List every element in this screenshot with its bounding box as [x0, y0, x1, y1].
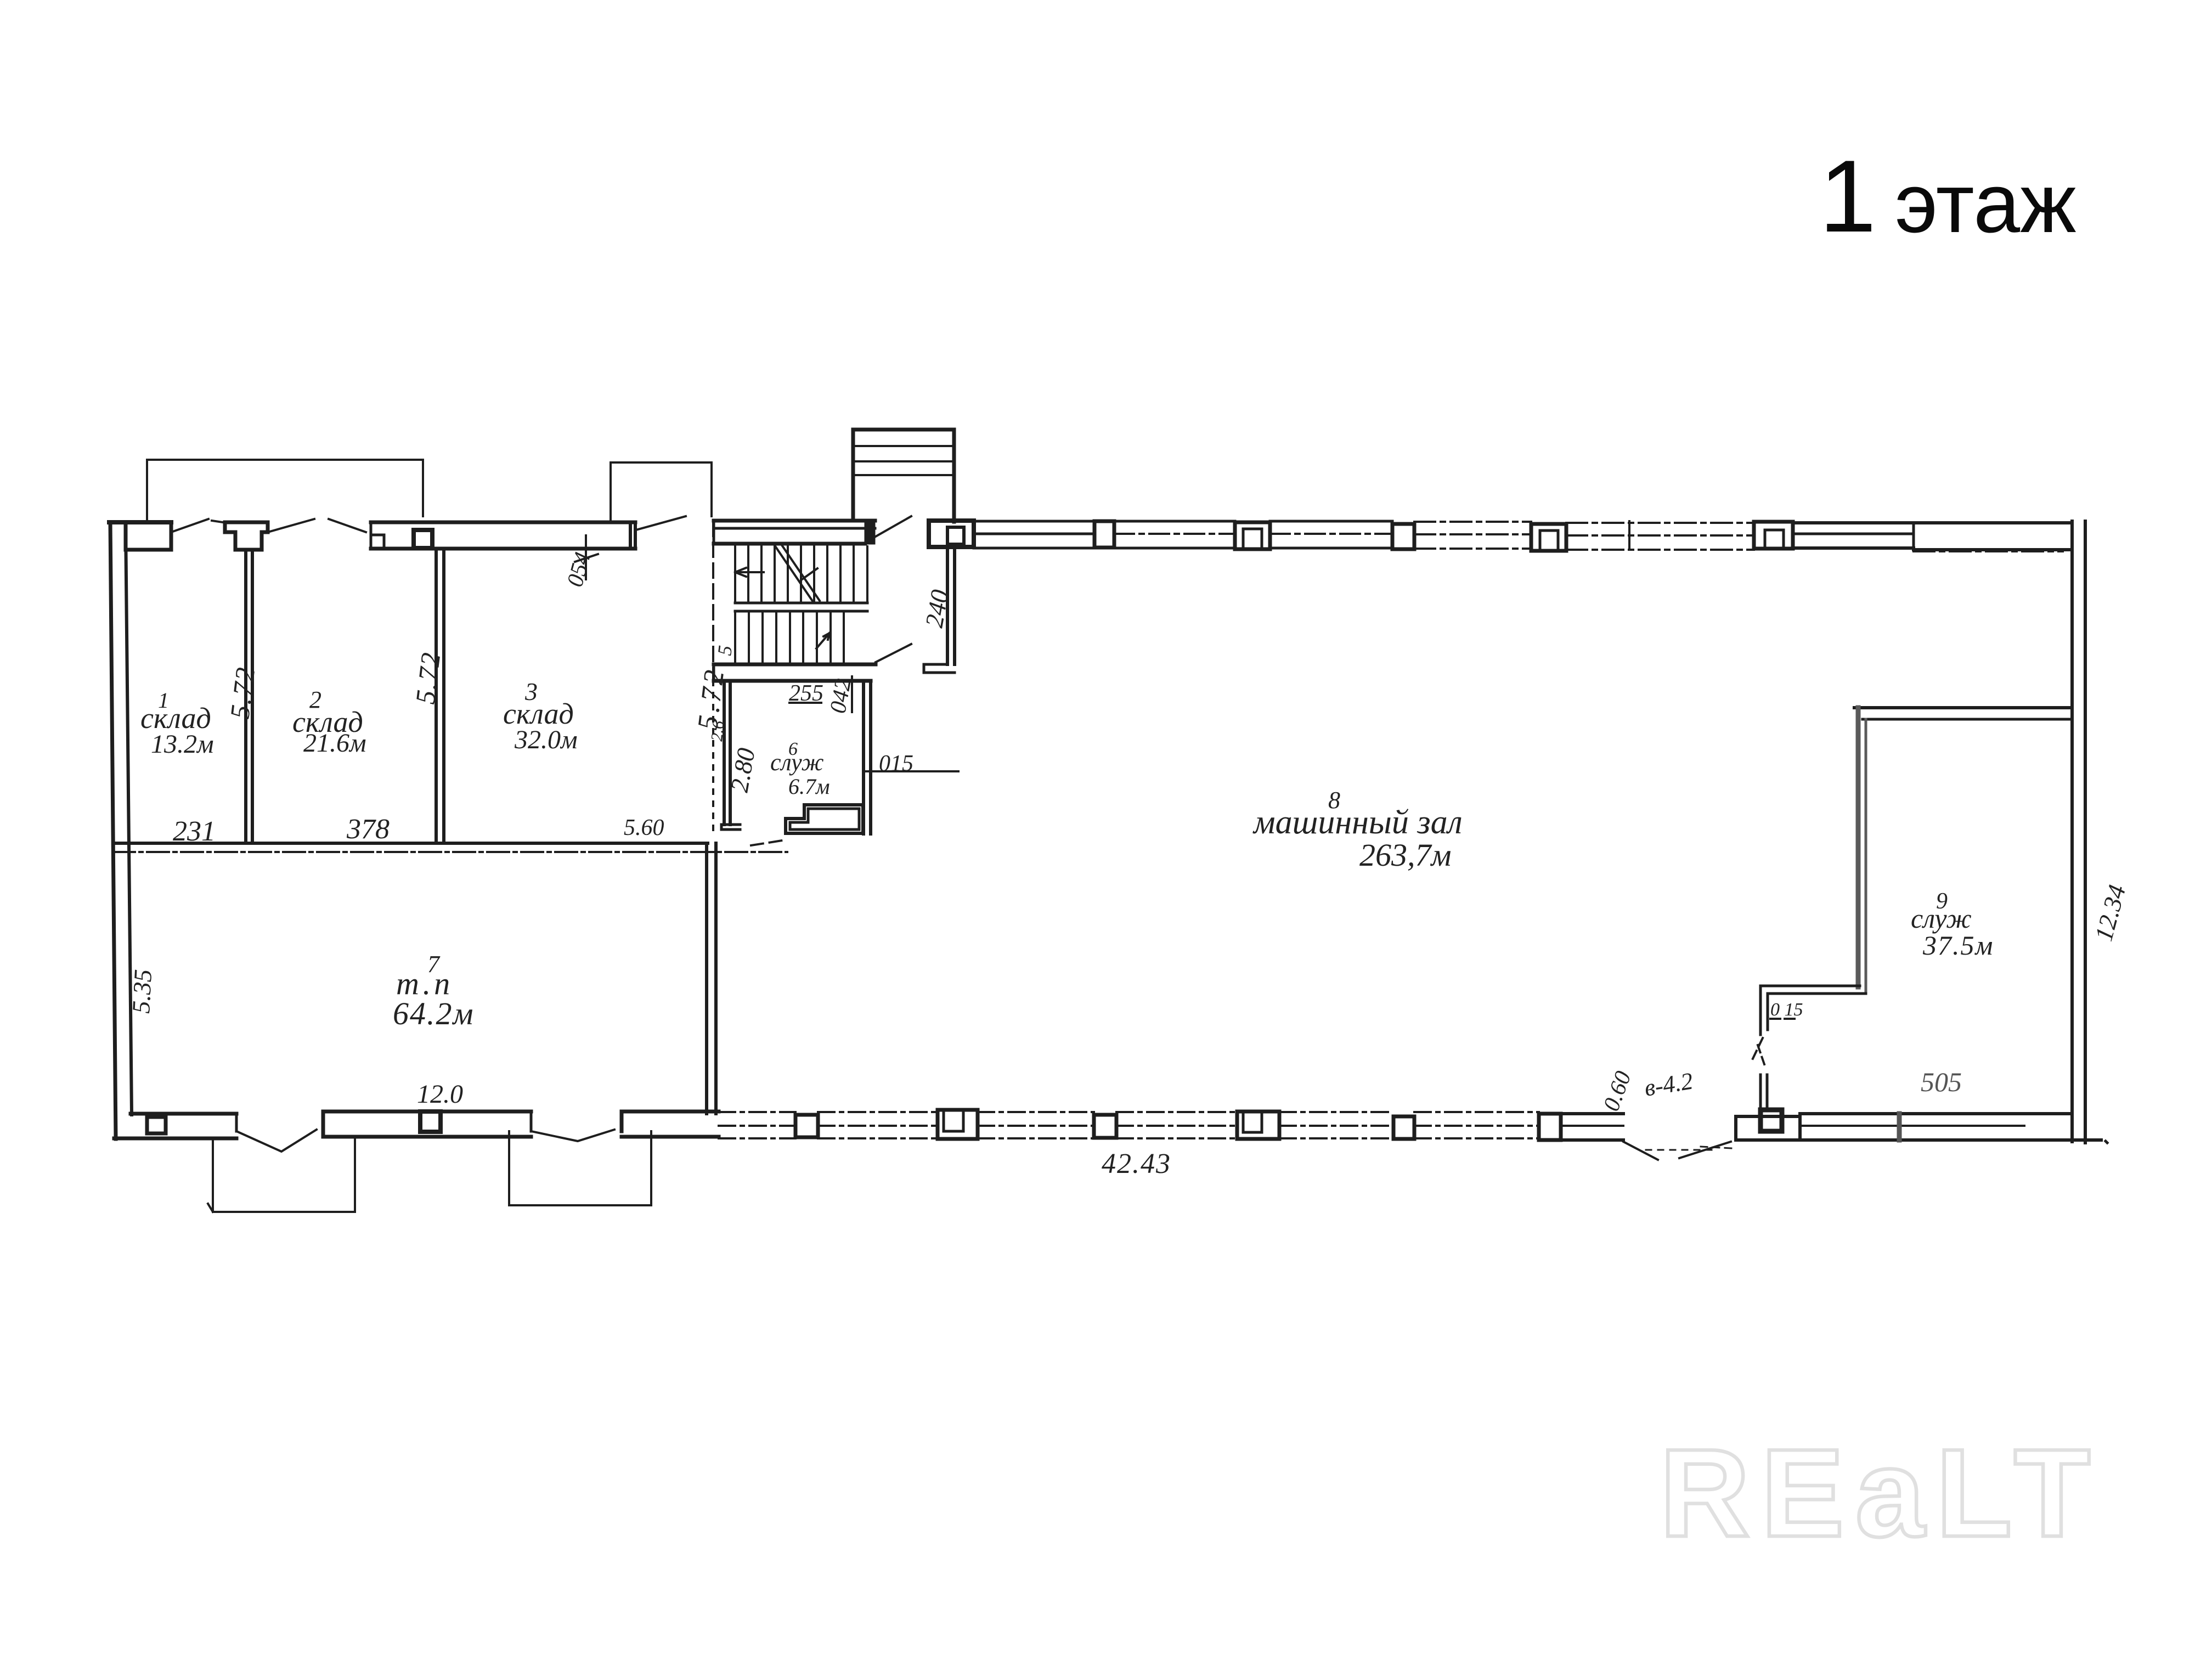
svg-text:505: 505 [1921, 1066, 1962, 1097]
svg-text:0 15: 0 15 [1770, 1000, 1803, 1020]
svg-text:32.0м: 32.0м [514, 725, 578, 754]
svg-text:42.43: 42.43 [1102, 1148, 1171, 1180]
svg-text:0.60: 0.60 [1599, 1068, 1636, 1115]
svg-text:12.0: 12.0 [417, 1080, 463, 1109]
svg-text:37.5м: 37.5м [1922, 930, 1994, 961]
svg-text:REaLT: REaLT [1660, 1424, 2101, 1563]
svg-text:13.2м: 13.2м [151, 730, 214, 759]
svg-text:6.7м: 6.7м [788, 774, 830, 799]
svg-text:в-4.2: в-4.2 [1643, 1068, 1695, 1102]
svg-text:5.35: 5.35 [127, 968, 157, 1014]
svg-text:263,7м: 263,7м [1359, 837, 1452, 873]
svg-text:5.72: 5.72 [224, 665, 261, 721]
svg-text:машинный зал: машинный зал [1252, 804, 1463, 841]
svg-text:этаж: этаж [1895, 156, 2076, 250]
svg-text:015: 015 [879, 751, 913, 776]
svg-text:054: 054 [562, 550, 596, 590]
svg-text:64.2м: 64.2м [393, 996, 475, 1031]
svg-text:1: 1 [1819, 139, 1876, 253]
svg-text:служ: служ [770, 749, 824, 776]
svg-text:служ: служ [1911, 903, 1972, 934]
svg-text:12.34: 12.34 [2089, 882, 2131, 944]
svg-text:5: 5 [713, 644, 736, 657]
svg-text:2.6: 2.6 [708, 720, 727, 742]
svg-text:5.60: 5.60 [624, 815, 664, 840]
svg-text:231: 231 [173, 816, 216, 847]
svg-text:21.6м: 21.6м [303, 729, 366, 758]
svg-text:378: 378 [346, 814, 390, 845]
svg-text:5.72: 5.72 [409, 650, 446, 706]
